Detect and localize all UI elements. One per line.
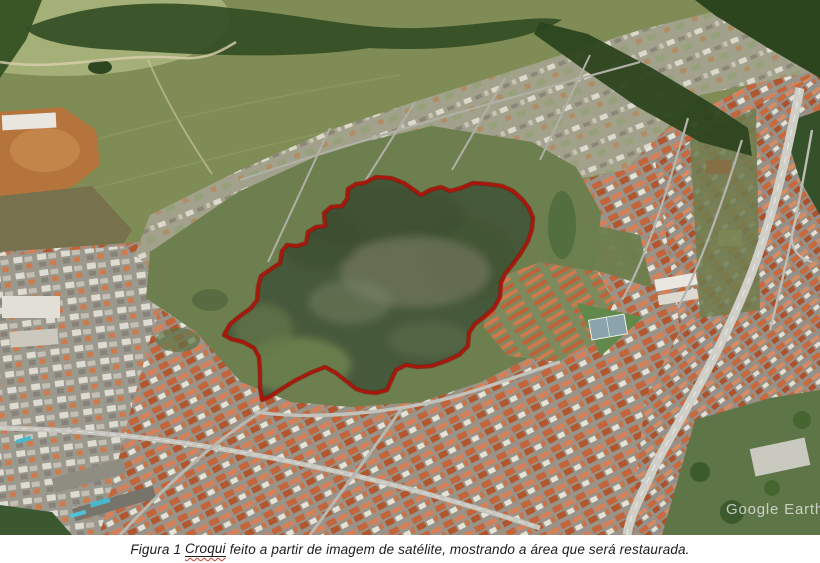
document-page: Google Earth Figura 1 Croqui feito a par… — [0, 0, 820, 563]
figure-caption: Figura 1 Croqui feito a partir de imagem… — [0, 535, 820, 563]
satellite-figure: Google Earth — [0, 0, 820, 535]
google-earth-watermark: Google Earth — [726, 501, 820, 518]
caption-underlined-word: Croqui — [185, 541, 226, 557]
satellite-image: Google Earth — [0, 0, 820, 535]
warehouse-roof — [2, 113, 57, 131]
caption-figure-label: Figura 1 — [130, 542, 185, 557]
caption-text: feito a partir de imagem de satélite, mo… — [226, 542, 690, 557]
